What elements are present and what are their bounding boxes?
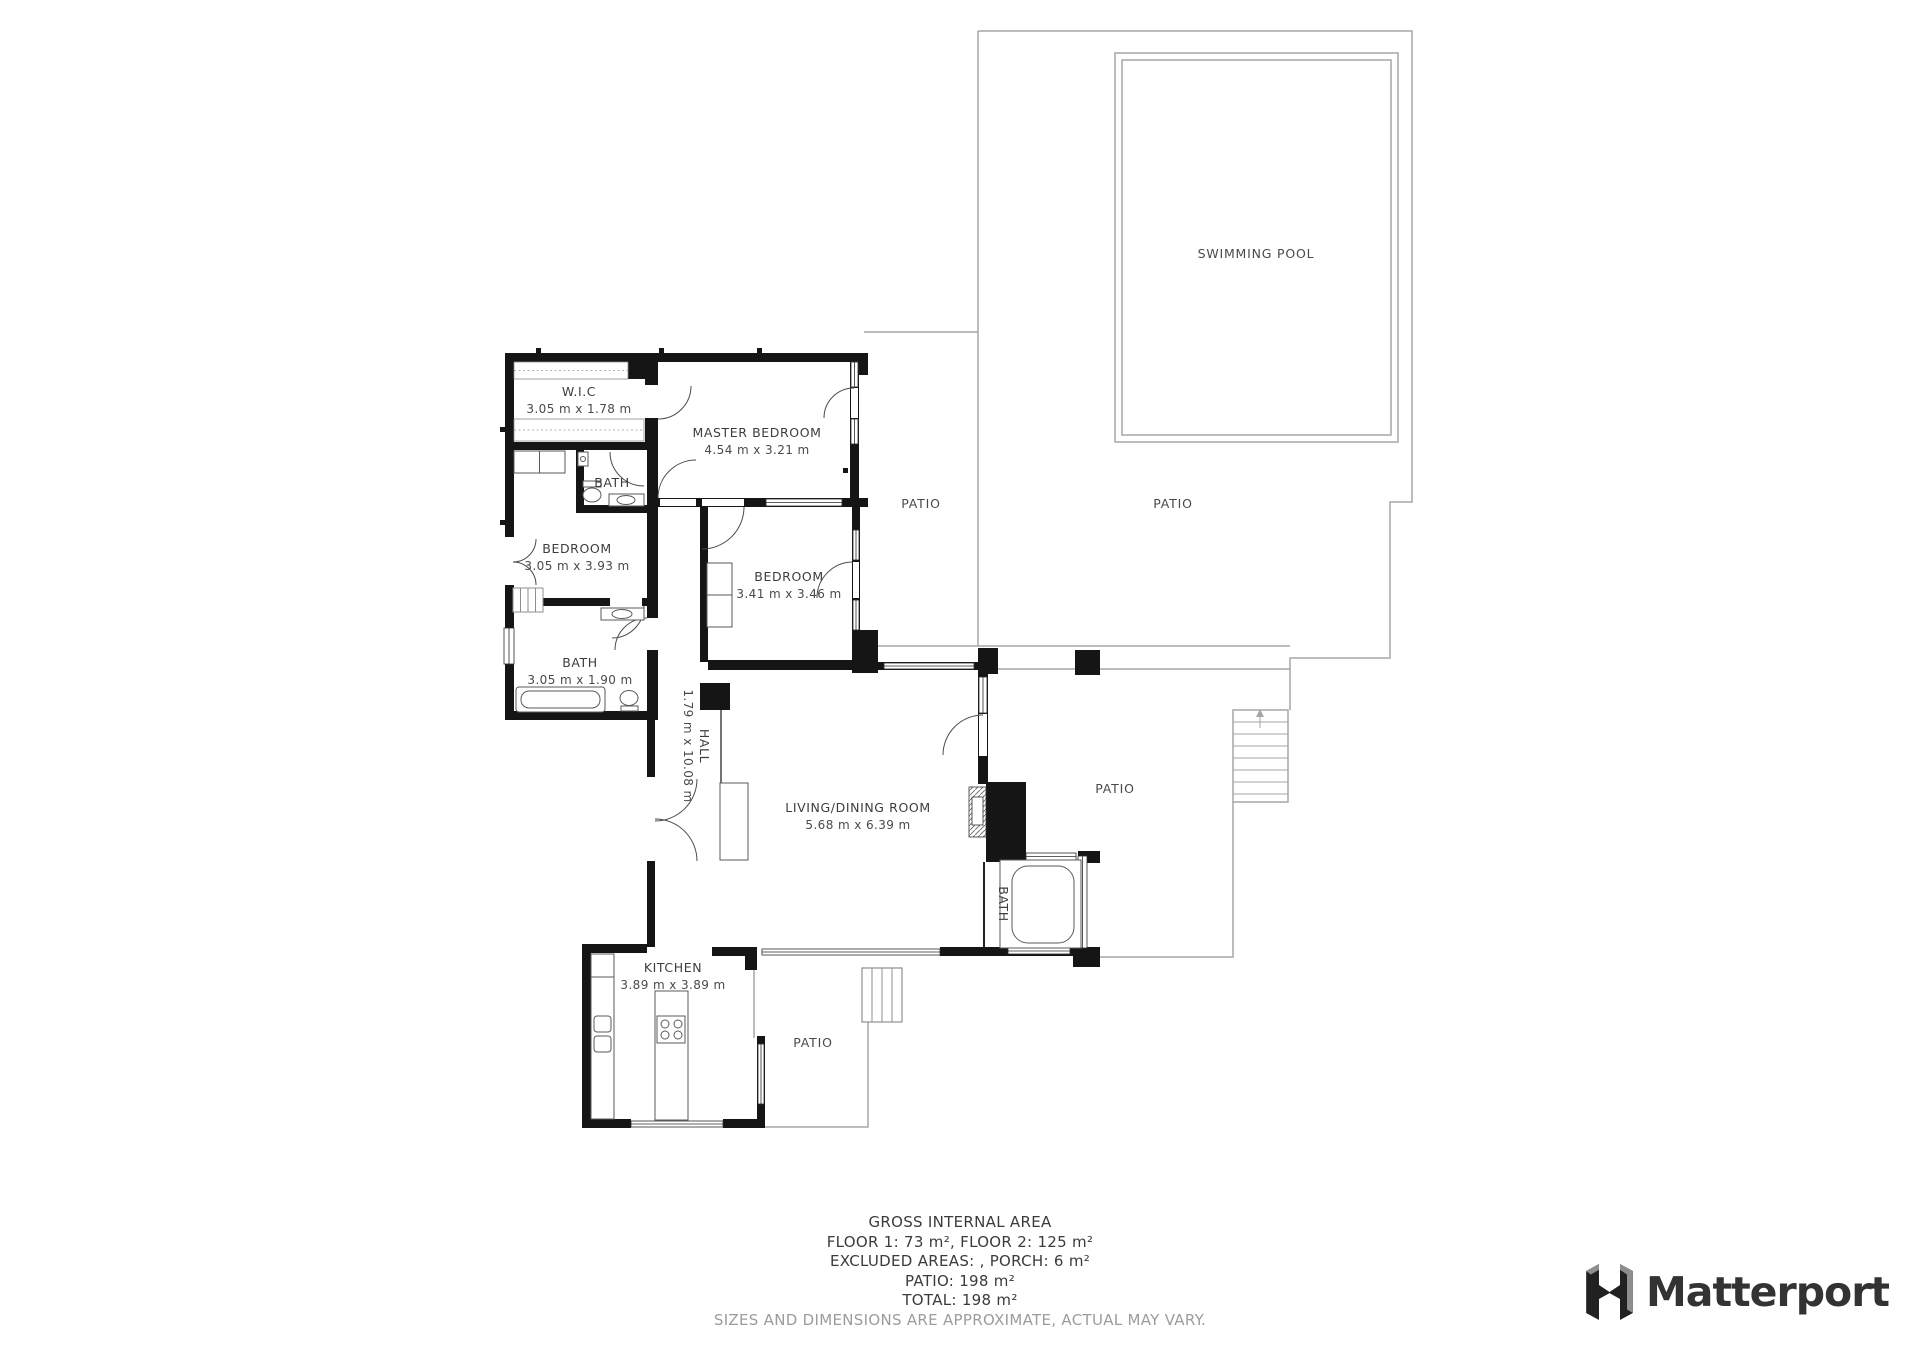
- summary-title: GROSS INTERNAL AREA: [0, 1213, 1920, 1233]
- matterport-logo-text: Matterport: [1646, 1268, 1889, 1316]
- floor-plan-page: W.I.C 3.05 m x 1.78 m MASTER BEDROOM 4.5…: [0, 0, 1920, 1357]
- label-patio-upper-left: PATIO: [901, 496, 940, 511]
- label-bedroom-left-dims: 3.05 m x 3.93 m: [524, 559, 629, 573]
- fridge: [591, 954, 614, 977]
- label-hall: HALL: [697, 729, 712, 763]
- label-swimming-pool: SWIMMING POOL: [1198, 246, 1315, 261]
- label-bedroom-left: BEDROOM: [542, 541, 611, 556]
- closet-bedroom-left: [514, 451, 565, 473]
- label-bedroom-middle: BEDROOM: [754, 569, 823, 584]
- matterport-logo: Matterport: [1586, 1264, 1889, 1320]
- toilet-icon: [583, 488, 601, 502]
- label-patio-pool: PATIO: [1153, 496, 1192, 511]
- closet-bedroom-middle: [707, 563, 732, 627]
- patio-stairs-bottom: [862, 968, 902, 1022]
- label-kitchen-dims: 3.89 m x 3.89 m: [620, 978, 725, 992]
- label-wic-dims: 3.05 m x 1.78 m: [526, 402, 631, 416]
- stove-icon: [657, 1016, 685, 1043]
- label-wic: W.I.C: [562, 384, 596, 399]
- label-bath-lower: BATH: [996, 886, 1011, 922]
- label-patio-middle: PATIO: [1095, 781, 1134, 796]
- toilet-icon: [620, 691, 638, 706]
- bedroom-left-steps: [513, 588, 543, 612]
- label-living-dining: LIVING/DINING ROOM: [785, 800, 930, 815]
- label-bath-left-dims: 3.05 m x 1.90 m: [527, 673, 632, 687]
- summary-floors: FLOOR 1: 73 m², FLOOR 2: 125 m²: [0, 1233, 1920, 1253]
- patio-stairs-right: [1233, 709, 1288, 802]
- label-master-bedroom: MASTER BEDROOM: [692, 425, 821, 440]
- matterport-logo-icon: [1586, 1264, 1633, 1320]
- label-kitchen: KITCHEN: [644, 960, 702, 975]
- living-cabinet: [720, 710, 748, 860]
- label-living-dining-dims: 5.68 m x 6.39 m: [805, 818, 910, 832]
- label-hall-dims: 1.79 m x 10.08 m: [681, 689, 695, 802]
- sink-icon: [594, 1016, 611, 1032]
- fireplace-icon: [969, 787, 986, 837]
- floor-plan-svg: W.I.C 3.05 m x 1.78 m MASTER BEDROOM 4.5…: [0, 0, 1920, 1357]
- label-master-bedroom-dims: 4.54 m x 3.21 m: [704, 443, 809, 457]
- label-patio-bottom: PATIO: [793, 1035, 832, 1050]
- label-bedroom-middle-dims: 3.41 m x 3.46 m: [736, 587, 841, 601]
- label-bath-top: BATH: [594, 475, 630, 490]
- kitchen-island: [655, 991, 688, 1120]
- label-bath-left: BATH: [562, 655, 598, 670]
- walls: [500, 348, 1100, 1128]
